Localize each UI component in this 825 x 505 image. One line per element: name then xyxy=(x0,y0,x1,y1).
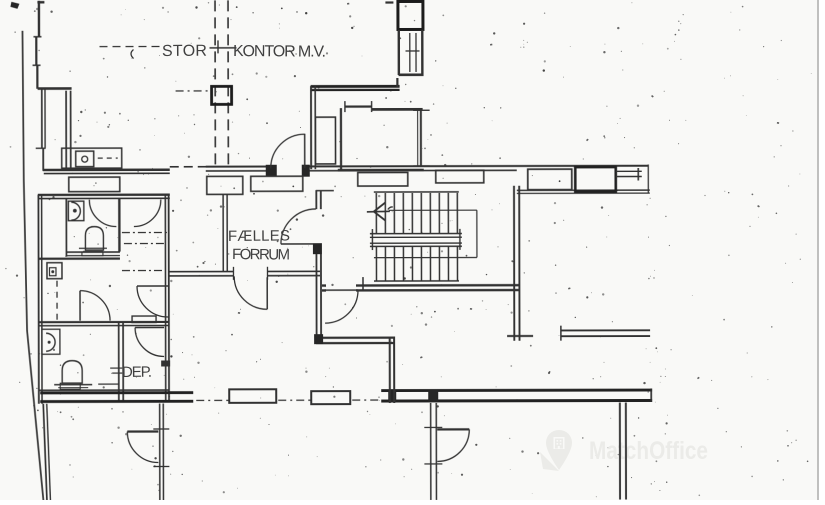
svg-text:KONTOR M.V.: KONTOR M.V. xyxy=(233,43,326,61)
svg-text:FORRUM: FORRUM xyxy=(232,246,290,264)
svg-text:MatchOffice: MatchOffice xyxy=(589,437,708,465)
svg-text:STOR: STOR xyxy=(162,43,207,60)
svg-text:DEP.: DEP. xyxy=(122,364,152,381)
svg-text:FÆLLES: FÆLLES xyxy=(228,227,290,245)
